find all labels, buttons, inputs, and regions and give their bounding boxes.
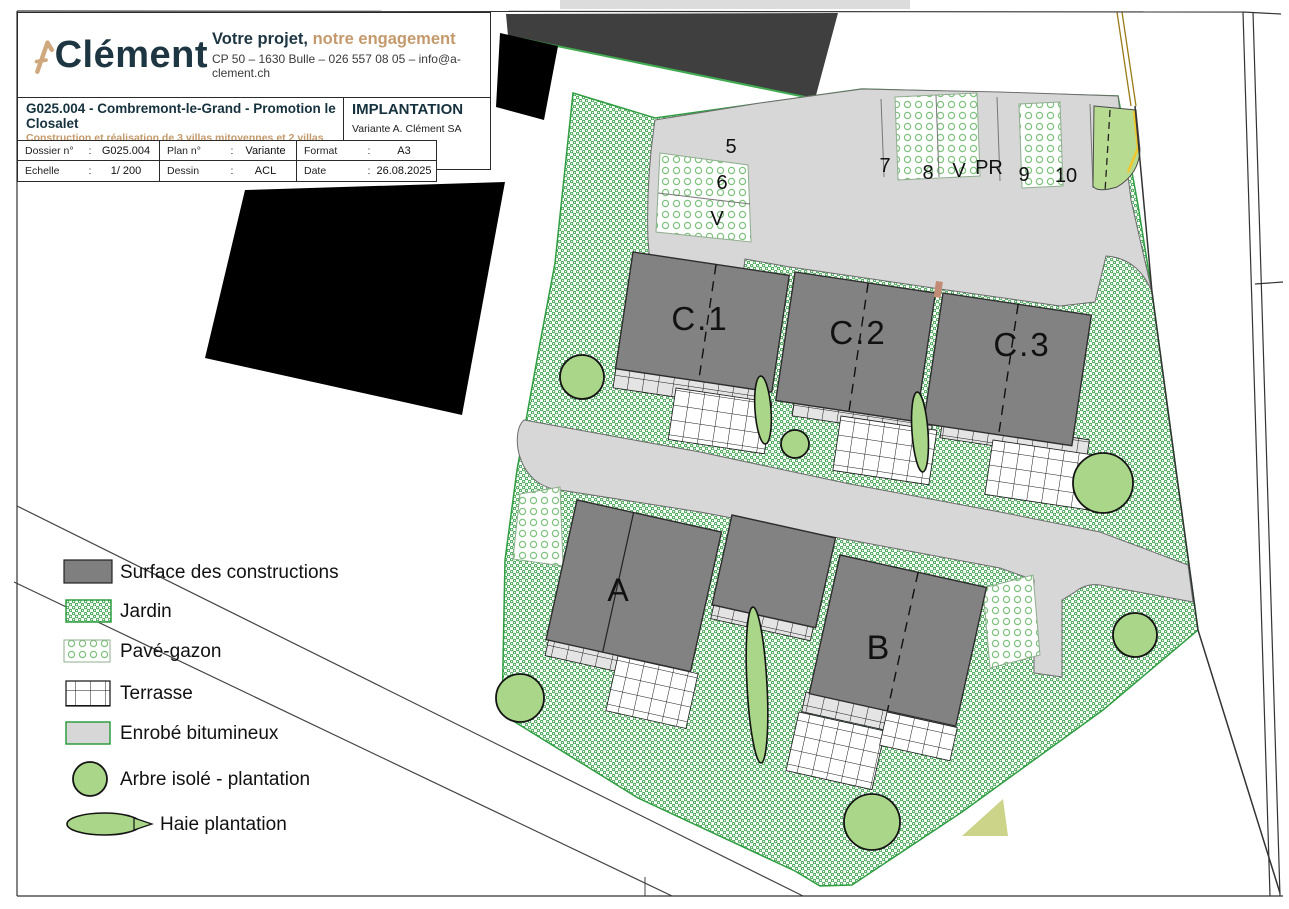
legend-swatch-constructions: [64, 560, 112, 583]
cell-label: Plan n°: [167, 145, 225, 157]
stall-6-label: 6: [716, 172, 727, 194]
tree-icon: [1073, 453, 1133, 513]
titleblock-info-table: Dossier n° : G025.004 Plan n° : Variante…: [17, 140, 437, 182]
tree-icon: [560, 355, 604, 399]
villa-a: [546, 500, 721, 672]
cell-value: Variante: [239, 145, 292, 157]
table-cell-date: Date : 26.08.2025: [297, 161, 436, 181]
villa-c3: [923, 293, 1091, 446]
cell-label: Echelle: [25, 165, 83, 177]
cell-label: Dessin: [167, 165, 225, 177]
table-cell-format: Format : A3: [297, 141, 436, 161]
legend-swatch-jardin: [66, 600, 111, 622]
tree-icon: [781, 430, 809, 458]
cell-colon: :: [83, 165, 97, 177]
villa-a-label: A: [607, 572, 629, 608]
cell-colon: :: [362, 145, 376, 157]
stall-v-left-label: V: [710, 208, 724, 230]
tree-icon: [844, 794, 900, 850]
legend-label-enrobe: Enrobé bitumineux: [120, 723, 279, 744]
cell-value: A3: [376, 145, 432, 157]
legend-swatch-pave-gazon: [64, 640, 110, 662]
stall-7-label: 7: [879, 155, 890, 177]
tagline-dark: Votre projet,: [212, 30, 308, 48]
contact-line: CP 50 – 1630 Bulle – 026 557 08 05 – inf…: [212, 52, 490, 80]
legend-label-constructions: Surface des constructions: [120, 562, 339, 583]
legend-label-pave-gazon: Pavé-gazon: [120, 641, 221, 662]
stall-pr-label: PR: [975, 157, 1003, 179]
cell-value: ACL: [239, 165, 292, 177]
paver-east-of-b: [983, 575, 1040, 668]
cell-label: Format: [304, 145, 362, 157]
legend-label-haie: Haie plantation: [160, 814, 287, 835]
villa-c3-label: C.3: [993, 326, 1050, 363]
table-cell-dossier: Dossier n° : G025.004: [18, 141, 160, 161]
cell-colon: :: [225, 165, 239, 177]
table-cell-plan-no: Plan n° : Variante: [160, 141, 297, 161]
cell-value: 1/ 200: [97, 165, 155, 177]
stall-9-label: 9: [1018, 164, 1029, 186]
cell-value: G025.004: [97, 145, 155, 157]
top-road-strip: [560, 0, 910, 9]
stall-10-label: 10: [1055, 165, 1077, 187]
stall-5-label: 5: [725, 136, 736, 158]
tree-icon: [1113, 613, 1157, 657]
stall-8-label: 8: [922, 162, 933, 184]
company-logo: Clément: [18, 26, 208, 84]
site-plan-sheet: C.1 C.2 C.3 A B 5 6 V 7 8 V PR 9 10 Surf…: [0, 0, 1289, 909]
titleblock-logo-row: Clément Votre projet, notre engagement C…: [18, 13, 490, 98]
cell-label: Date: [304, 165, 362, 177]
plan-variant: Variante A. Clément SA: [352, 123, 486, 135]
paver-west-of-a: [513, 487, 563, 566]
legend-label-arbre: Arbre isolé - plantation: [120, 769, 310, 790]
cell-colon: :: [362, 165, 376, 177]
legend-swatch-enrobe: [66, 722, 110, 744]
tagline-block: Votre projet, notre engagement CP 50 – 1…: [208, 30, 490, 80]
tagline-accent: notre engagement: [313, 30, 456, 48]
legend-label-terrasse: Terrasse: [120, 683, 193, 704]
table-cell-dessin: Dessin : ACL: [160, 161, 297, 181]
logo-text: Clément: [55, 34, 208, 77]
plan-type: IMPLANTATION: [352, 101, 486, 118]
cell-colon: :: [225, 145, 239, 157]
legend-swatch-terrasse: [66, 681, 110, 706]
stall-v-top-label: V: [952, 160, 966, 182]
villa-c2-label: C.2: [829, 314, 886, 351]
stall-6-v: [656, 153, 751, 242]
table-cell-echelle: Echelle : 1/ 200: [18, 161, 160, 181]
villa-c1-label: C.1: [671, 300, 728, 337]
cell-label: Dossier n°: [25, 145, 83, 157]
project-title: G025.004 - Combremont-le-Grand - Promoti…: [26, 101, 337, 131]
cell-colon: :: [83, 145, 97, 157]
cell-value: 26.08.2025: [376, 165, 432, 177]
tree-icon: [496, 674, 544, 722]
legend-swatch-arbre: [73, 762, 107, 796]
legend-label-jardin: Jardin: [120, 601, 172, 622]
villa-b-label: B: [867, 629, 890, 667]
